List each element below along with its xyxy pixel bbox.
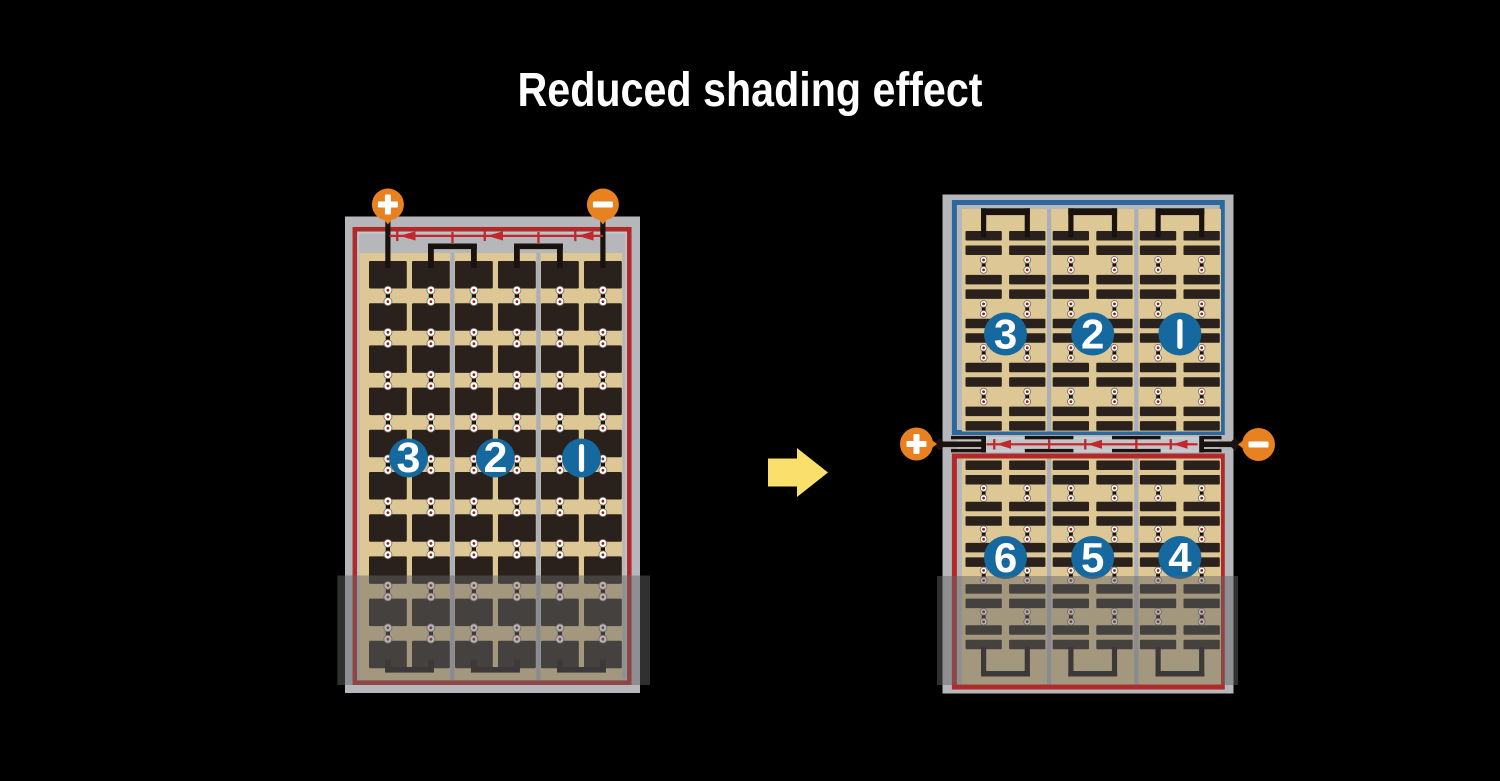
svg-text:2: 2 (483, 434, 507, 482)
svg-text:3: 3 (397, 434, 421, 482)
svg-text:5: 5 (1081, 534, 1104, 581)
svg-text:Reduced shading effect: Reduced shading effect (518, 64, 983, 117)
svg-text:3: 3 (994, 311, 1017, 358)
svg-text:6: 6 (994, 534, 1017, 581)
svg-text:2: 2 (1081, 311, 1104, 358)
svg-text:4: 4 (1168, 534, 1192, 581)
